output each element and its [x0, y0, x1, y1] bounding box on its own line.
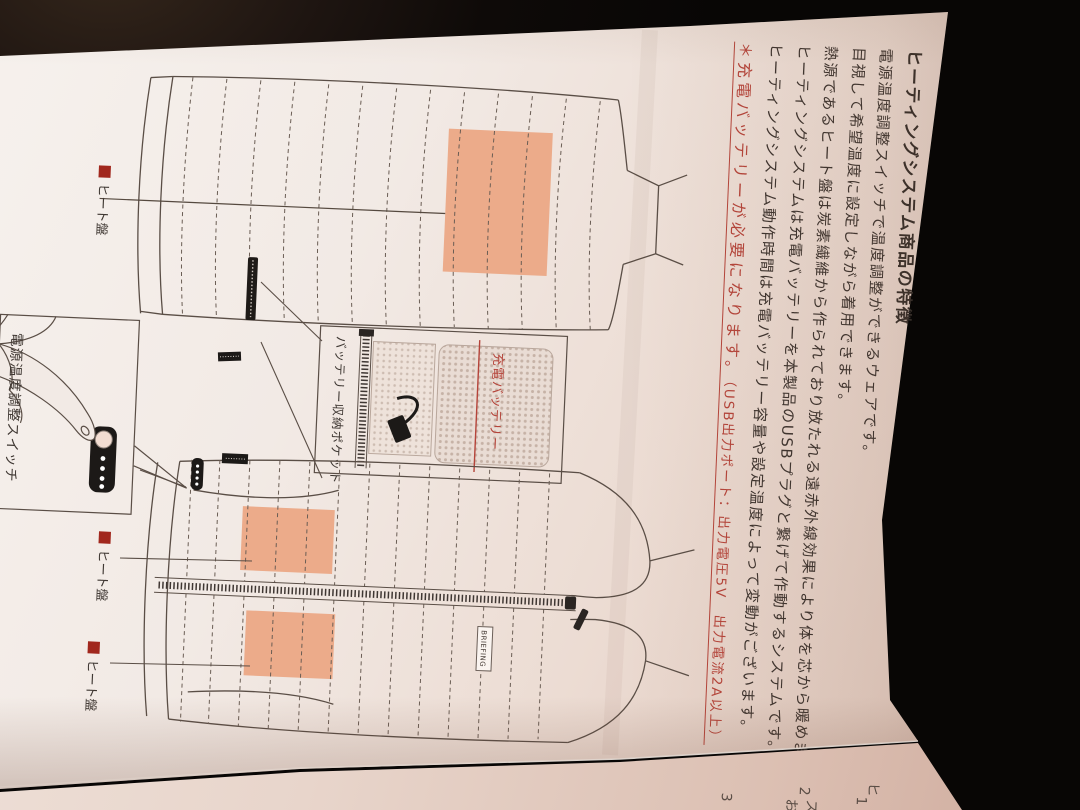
front-heat-panel-left	[244, 610, 336, 679]
front-heat-panel-right	[240, 506, 335, 574]
back-heat-panel-label: ヒート盤	[93, 165, 115, 236]
pocket-zipper-teeth	[361, 335, 367, 466]
next-page-fragment: お	[781, 798, 802, 810]
red-square-icon	[99, 531, 112, 544]
front-heat-panel-label-2: ヒート盤	[82, 641, 104, 712]
heat-panel-label-text: ヒート盤	[82, 659, 103, 712]
back-vest-collar	[623, 170, 659, 265]
front-vest-diagram: BRIEFING	[108, 443, 700, 758]
red-square-icon	[88, 641, 101, 654]
note-marker: ＊	[735, 42, 755, 63]
photo-of-manual: ヒート盤 電源温度調整スイッチ	[0, 0, 1080, 810]
heat-panel-leader-line	[100, 198, 446, 213]
feature-text-block: ヒーティングシステム商品の特徴 電源温度調整スイッチで温度調整ができるウェアです…	[693, 41, 927, 810]
front-heat-panel-label-1: ヒート盤	[93, 531, 115, 602]
next-page-fragment: 1（	[851, 796, 872, 810]
next-page-fragment: 2	[796, 786, 812, 798]
front-zipper-teeth	[156, 585, 574, 603]
back-heat-panel	[443, 129, 553, 276]
zipper-slider	[565, 596, 577, 609]
heat-panel-label-text: ヒート盤	[93, 183, 114, 236]
back-vest-diagram: ヒート盤	[54, 60, 665, 344]
next-page-fragment: ス	[801, 799, 822, 810]
garment-brand-tag: BRIEFING	[476, 626, 493, 671]
next-page-fragment: 3	[718, 792, 734, 804]
switch-power-button	[95, 431, 113, 449]
heat-panel-label-text: ヒート盤	[93, 549, 114, 602]
brand-tag-text: BRIEFING	[478, 630, 488, 667]
red-square-icon	[99, 165, 112, 178]
